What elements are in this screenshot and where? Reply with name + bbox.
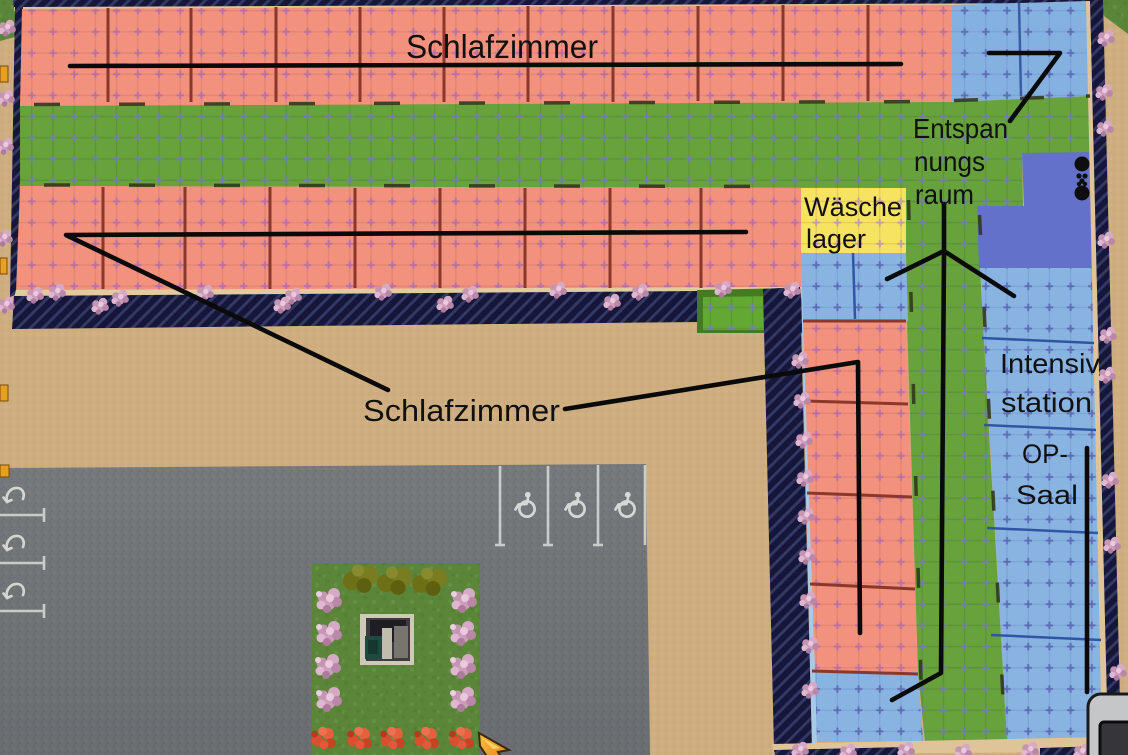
- svg-text:raum: raum: [915, 179, 974, 210]
- svg-text:Intensiv: Intensiv: [1000, 348, 1100, 379]
- svg-text:Saal: Saal: [1016, 480, 1078, 510]
- svg-text:lager: lager: [806, 224, 866, 254]
- svg-text:Wäsche: Wäsche: [804, 192, 902, 222]
- svg-text:nungs: nungs: [914, 146, 985, 177]
- svg-text:OP-: OP-: [1022, 439, 1068, 469]
- svg-text:Schlafzimmer: Schlafzimmer: [406, 28, 598, 65]
- svg-text:Entspan: Entspan: [913, 113, 1008, 144]
- svg-text:station: station: [1001, 387, 1092, 418]
- svg-text:Schlafzimmer: Schlafzimmer: [363, 393, 560, 428]
